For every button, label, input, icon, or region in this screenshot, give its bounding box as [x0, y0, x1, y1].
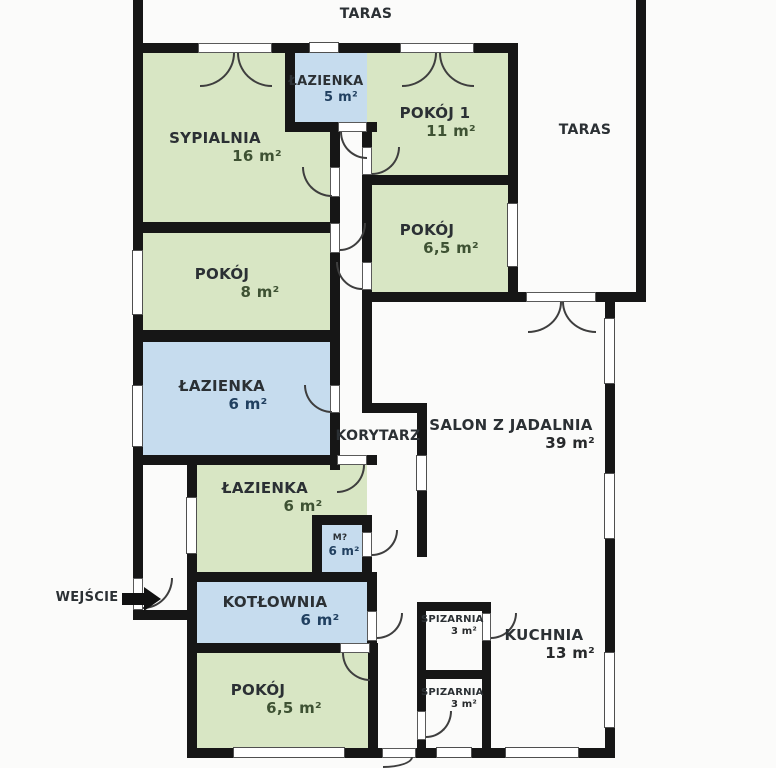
wall	[187, 572, 377, 582]
room-name: SPIZARNIA	[421, 687, 483, 699]
door-swing-arc	[528, 302, 562, 333]
label-salon: SALON Z JADALNIA 39 m²	[411, 416, 611, 452]
wall	[417, 602, 490, 611]
window	[416, 455, 427, 491]
label-spizarnia-1: SPIZARNIA 3 m²	[421, 614, 483, 638]
window	[436, 747, 472, 758]
label-spizarnia-2: SPIZARNIA 3 m²	[421, 687, 483, 711]
room-name: POKÓJ	[367, 221, 487, 239]
window	[507, 203, 518, 267]
label-pokoj-65-gora: POKÓJ 6,5 m²	[367, 221, 487, 257]
door-opening	[337, 455, 367, 465]
label-sypialnia: SYPIALNIA 16 m²	[135, 129, 295, 165]
room-name: SPIZARNIA	[421, 614, 483, 626]
label-m-pokoik: M? 6 m²	[317, 533, 363, 558]
wall	[133, 0, 143, 43]
room-name: POKÓJ	[198, 681, 318, 699]
room-name: ŁAZIENKA	[205, 479, 325, 497]
room-name: POKÓJ 1	[375, 104, 495, 122]
label-pokoj-65-dol: POKÓJ 6,5 m²	[198, 681, 318, 717]
room-area: 3 m²	[421, 626, 483, 638]
label-kuchnia: KUCHNIA 13 m²	[489, 626, 599, 662]
room-area: 5 m²	[302, 90, 380, 106]
door-swing-arc	[377, 613, 403, 639]
window	[604, 318, 615, 384]
door-opening	[526, 292, 596, 302]
room-area: 16 m²	[177, 147, 337, 165]
door-swing-arc	[562, 302, 596, 333]
wall	[133, 610, 195, 620]
room-area: 6,5 m²	[391, 239, 511, 257]
door-opening	[340, 643, 370, 653]
door-swing-arc	[340, 132, 367, 159]
door-swing-arc	[383, 757, 413, 768]
window	[505, 747, 579, 758]
door-swing-arc	[372, 530, 398, 556]
wall	[133, 330, 340, 342]
floor-plan: TARAS TARAS SYPIALNIA 16 m² ŁAZIENKA 5 m…	[0, 0, 776, 768]
label-kotlownia: KOTŁOWNIA 6 m²	[215, 593, 335, 629]
label-lazienka-zielona: ŁAZIENKA 6 m²	[205, 479, 325, 515]
door-opening	[362, 262, 372, 290]
door-opening	[330, 223, 340, 253]
room-area: 6 m²	[321, 544, 367, 558]
door-swing-arc	[426, 711, 452, 738]
window	[309, 42, 339, 53]
window	[132, 385, 143, 447]
label-lazienka-gora: ŁAZIENKA 5 m²	[287, 74, 365, 105]
room-name: SYPIALNIA	[135, 129, 295, 147]
door-opening	[417, 711, 426, 740]
room-name: POKÓJ	[162, 265, 282, 283]
wall	[636, 0, 646, 302]
window	[604, 473, 615, 539]
label-pokoj-1: POKÓJ 1 11 m²	[375, 104, 495, 140]
room-area: 6 m²	[188, 395, 308, 413]
room-name: TARAS	[530, 122, 640, 139]
room-area: 6 m²	[260, 611, 380, 629]
room-name: KOTŁOWNIA	[215, 593, 335, 611]
wall	[417, 670, 491, 679]
room-name: KUCHNIA	[489, 626, 599, 644]
window	[233, 747, 345, 758]
wall	[362, 292, 646, 302]
door-opening	[198, 43, 272, 53]
door-opening	[338, 122, 367, 132]
room-name: ŁAZIENKA	[162, 377, 282, 395]
room-name: TARAS	[296, 6, 436, 23]
label-lazienka-niebieska: ŁAZIENKA 6 m²	[162, 377, 282, 413]
room-name: SALON Z JADALNIA	[411, 416, 611, 434]
label-taras-prawy: TARAS	[530, 122, 640, 139]
door-opening	[400, 43, 474, 53]
room-area: 8 m²	[200, 283, 320, 301]
label-pokoj-8: POKÓJ 8 m²	[162, 265, 282, 301]
room-area: 6,5 m²	[234, 699, 354, 717]
window	[132, 250, 143, 315]
room-name: M?	[317, 533, 363, 544]
window	[186, 497, 197, 554]
wall	[362, 175, 518, 185]
room-name: ŁAZIENKA	[287, 74, 365, 90]
room-name: WEJŚCIE	[50, 590, 124, 606]
room-area: 3 m²	[421, 699, 483, 711]
window	[604, 652, 615, 728]
wall	[133, 222, 340, 233]
label-taras-gora: TARAS	[296, 6, 436, 23]
room-area: 39 m²	[411, 434, 611, 452]
room-area: 6 m²	[243, 497, 363, 515]
room-area: 11 m²	[391, 122, 511, 140]
label-wejscie: WEJŚCIE	[50, 590, 124, 606]
room-area: 13 m²	[489, 644, 599, 662]
